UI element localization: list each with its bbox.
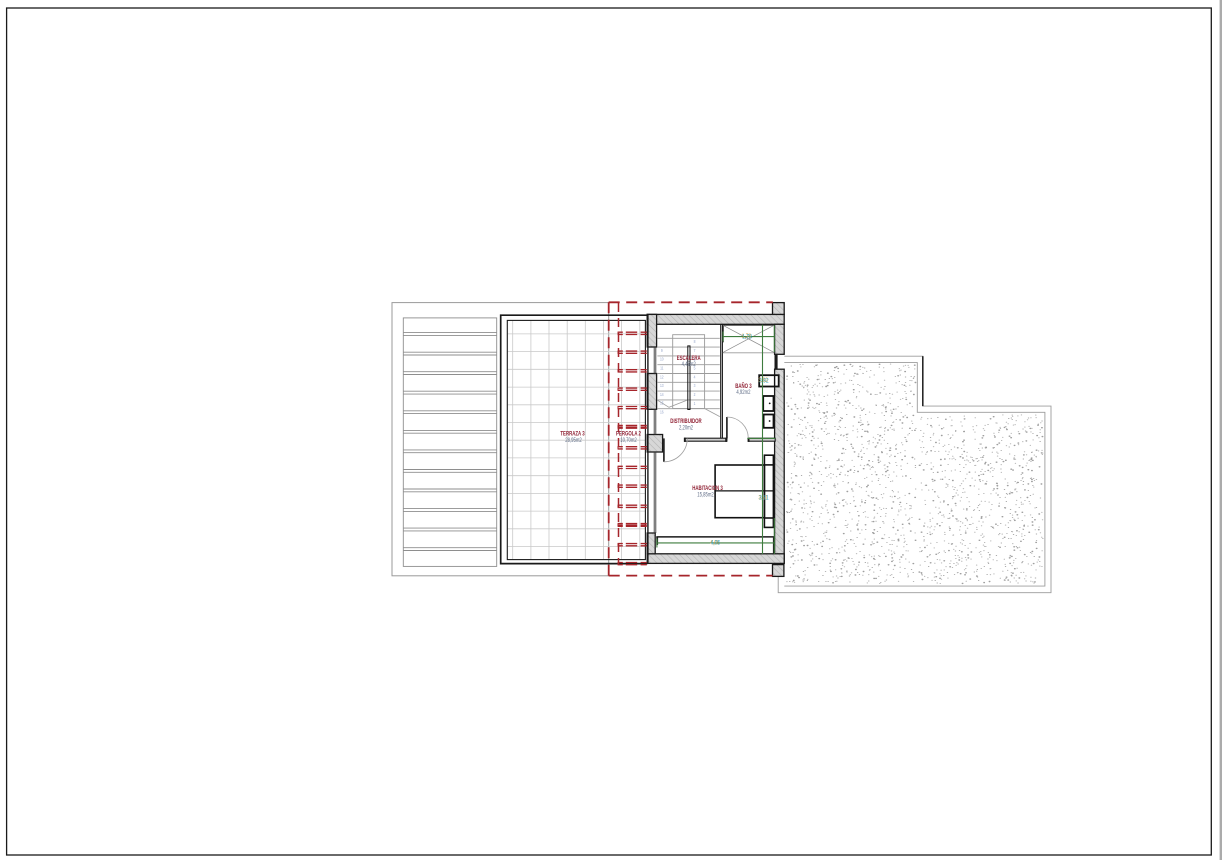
svg-text:15,85m2: 15,85m2: [697, 492, 713, 499]
svg-text:12: 12: [660, 374, 664, 380]
svg-text:1,78: 1,78: [742, 334, 752, 341]
svg-text:13: 13: [660, 383, 664, 389]
svg-text:2,20m2: 2,20m2: [679, 425, 693, 432]
svg-text:10,70m2: 10,70m2: [620, 437, 636, 444]
svg-text:3,51: 3,51: [759, 495, 769, 502]
svg-text:15: 15: [660, 400, 664, 406]
svg-text:3,92: 3,92: [759, 378, 769, 385]
svg-text:4,45m2: 4,45m2: [682, 361, 696, 368]
svg-text:16: 16: [660, 409, 664, 415]
svg-text:10: 10: [660, 356, 664, 362]
svg-text:4,92m2: 4,92m2: [736, 389, 750, 396]
svg-text:28,95m2: 28,95m2: [565, 437, 581, 444]
svg-text:14: 14: [660, 391, 664, 397]
svg-text:4,05: 4,05: [711, 540, 721, 547]
